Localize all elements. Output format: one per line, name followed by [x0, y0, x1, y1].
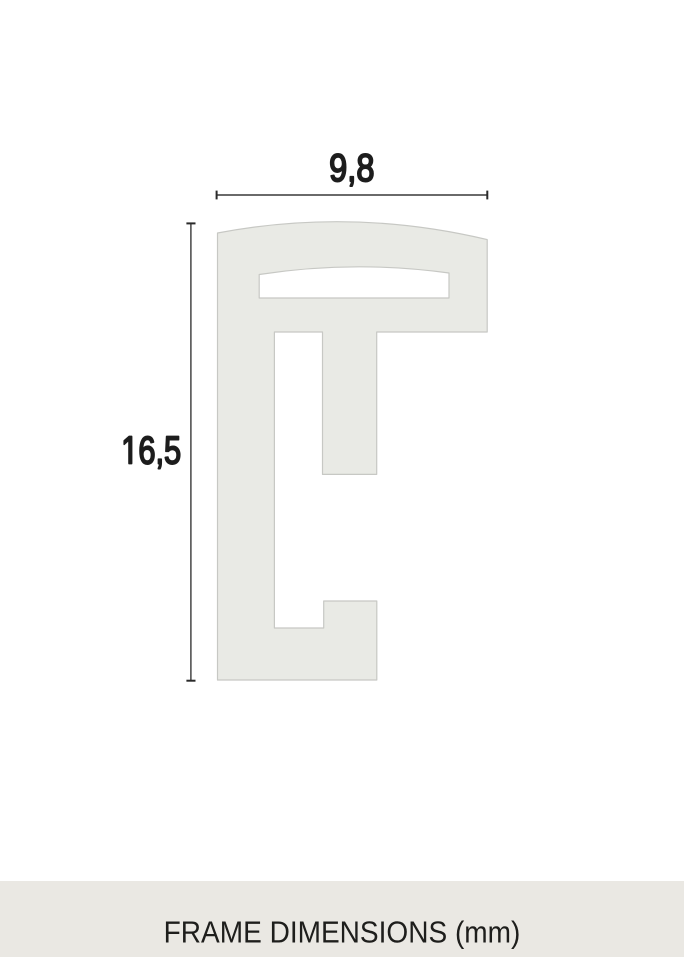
- svg-text:9,8: 9,8: [329, 145, 374, 190]
- svg-text:6,5: 6,5: [138, 429, 181, 472]
- svg-text:FRAME DIMENSIONS (mm): FRAME DIMENSIONS (mm): [164, 915, 521, 950]
